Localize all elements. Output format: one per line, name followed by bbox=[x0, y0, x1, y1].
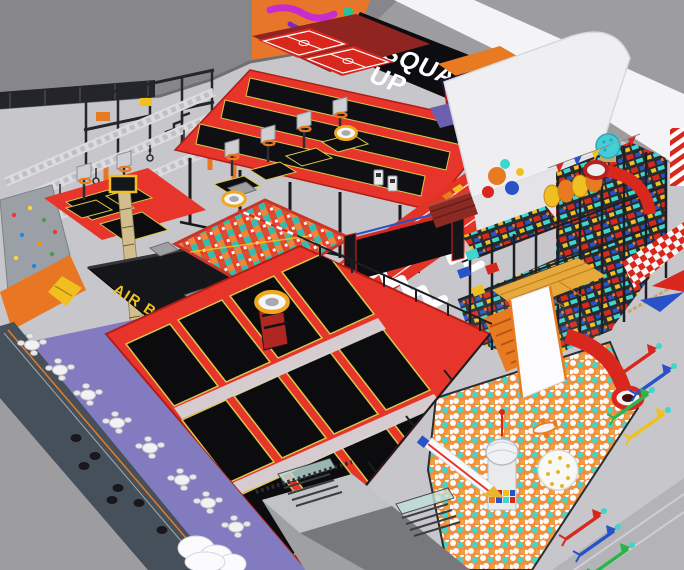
ring-target bbox=[223, 192, 246, 206]
ring-target bbox=[336, 126, 357, 139]
ring-target bbox=[256, 292, 288, 312]
trampoline-park-render: SQUAD UP bbox=[0, 0, 684, 570]
scene: SQUAD UP bbox=[0, 0, 684, 570]
candy-stripe-column bbox=[670, 128, 684, 186]
dotted-ball bbox=[538, 450, 578, 490]
